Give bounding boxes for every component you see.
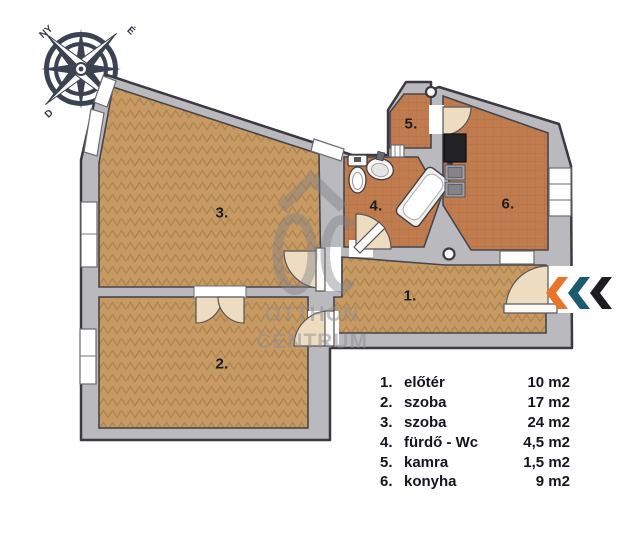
legend-name: előtér: [398, 374, 527, 391]
room-label-4: 4.: [369, 198, 382, 215]
legend-area: 1,5 m2: [523, 454, 570, 471]
entrance-chevrons: [546, 277, 612, 309]
watermark-text-line1: OTTHON: [265, 303, 360, 326]
entrance-door-leaf: [504, 304, 557, 313]
legend-row-1: 1. előtér 10 m2: [380, 374, 570, 394]
legend-row-3: 3. szoba 24 m2: [380, 414, 570, 434]
window-left-lower: [80, 329, 96, 384]
kitchen-unit-2-basin: [448, 185, 462, 195]
toilet-flush-icon: [354, 157, 361, 162]
junction-circle-top: [426, 87, 436, 97]
floorplan-page: É NY D: [0, 0, 640, 536]
toilet-seat-icon: [353, 173, 363, 190]
compass-label-north: É: [125, 23, 139, 37]
legend-num: 4.: [380, 434, 398, 451]
room-label-6: 6.: [501, 196, 514, 213]
legend-row-6: 6. konyha 9 m2: [380, 473, 570, 493]
legend-num: 1.: [380, 374, 398, 391]
legend-num: 5.: [380, 454, 398, 471]
legend-area: 10 m2: [527, 374, 570, 391]
legend-name: kamra: [398, 454, 523, 471]
legend-num: 6.: [380, 473, 398, 490]
legend-name: szoba: [398, 394, 527, 411]
window-kitchen-hall: [500, 251, 534, 264]
legend-row-2: 2. szoba 17 m2: [380, 394, 570, 414]
stove-icon: [444, 134, 466, 162]
window-left-middle: [81, 202, 97, 267]
watermark-text-line2: CENTRUM: [256, 330, 368, 353]
legend-row-5: 5. kamra 1,5 m2: [380, 454, 570, 474]
room-label-2: 2.: [215, 356, 228, 373]
room-legend: 1. előtér 10 m2 2. szoba 17 m2 3. szoba …: [380, 374, 570, 493]
legend-area: 17 m2: [527, 394, 570, 411]
compass-hub-dot: [79, 67, 84, 72]
legend-name: konyha: [398, 473, 536, 490]
legend-num: 2.: [380, 394, 398, 411]
sink-faucet-icon: [376, 151, 385, 160]
junction-circle-middle: [444, 249, 455, 260]
room-label-1: 1.: [403, 288, 416, 305]
legend-row-4: 4. fürdő - Wc 4,5 m2: [380, 434, 570, 454]
legend-name: szoba: [398, 414, 527, 431]
door-pantry-opening: [429, 105, 444, 134]
compass-label-south: D: [43, 108, 56, 121]
window-bath-pantry: [391, 145, 404, 157]
legend-area: 9 m2: [536, 473, 570, 490]
door-double-opening: [194, 286, 246, 298]
legend-area: 4,5 m2: [523, 434, 570, 451]
legend-name: fürdő - Wc: [398, 434, 523, 451]
room-label-5: 5.: [404, 116, 417, 133]
window-right: [549, 168, 571, 216]
legend-num: 3.: [380, 414, 398, 431]
kitchen-unit-1-basin: [448, 168, 462, 178]
legend-area: 24 m2: [527, 414, 570, 431]
room-label-3: 3.: [215, 205, 228, 222]
entrance-chevron-black-icon: [590, 277, 612, 309]
